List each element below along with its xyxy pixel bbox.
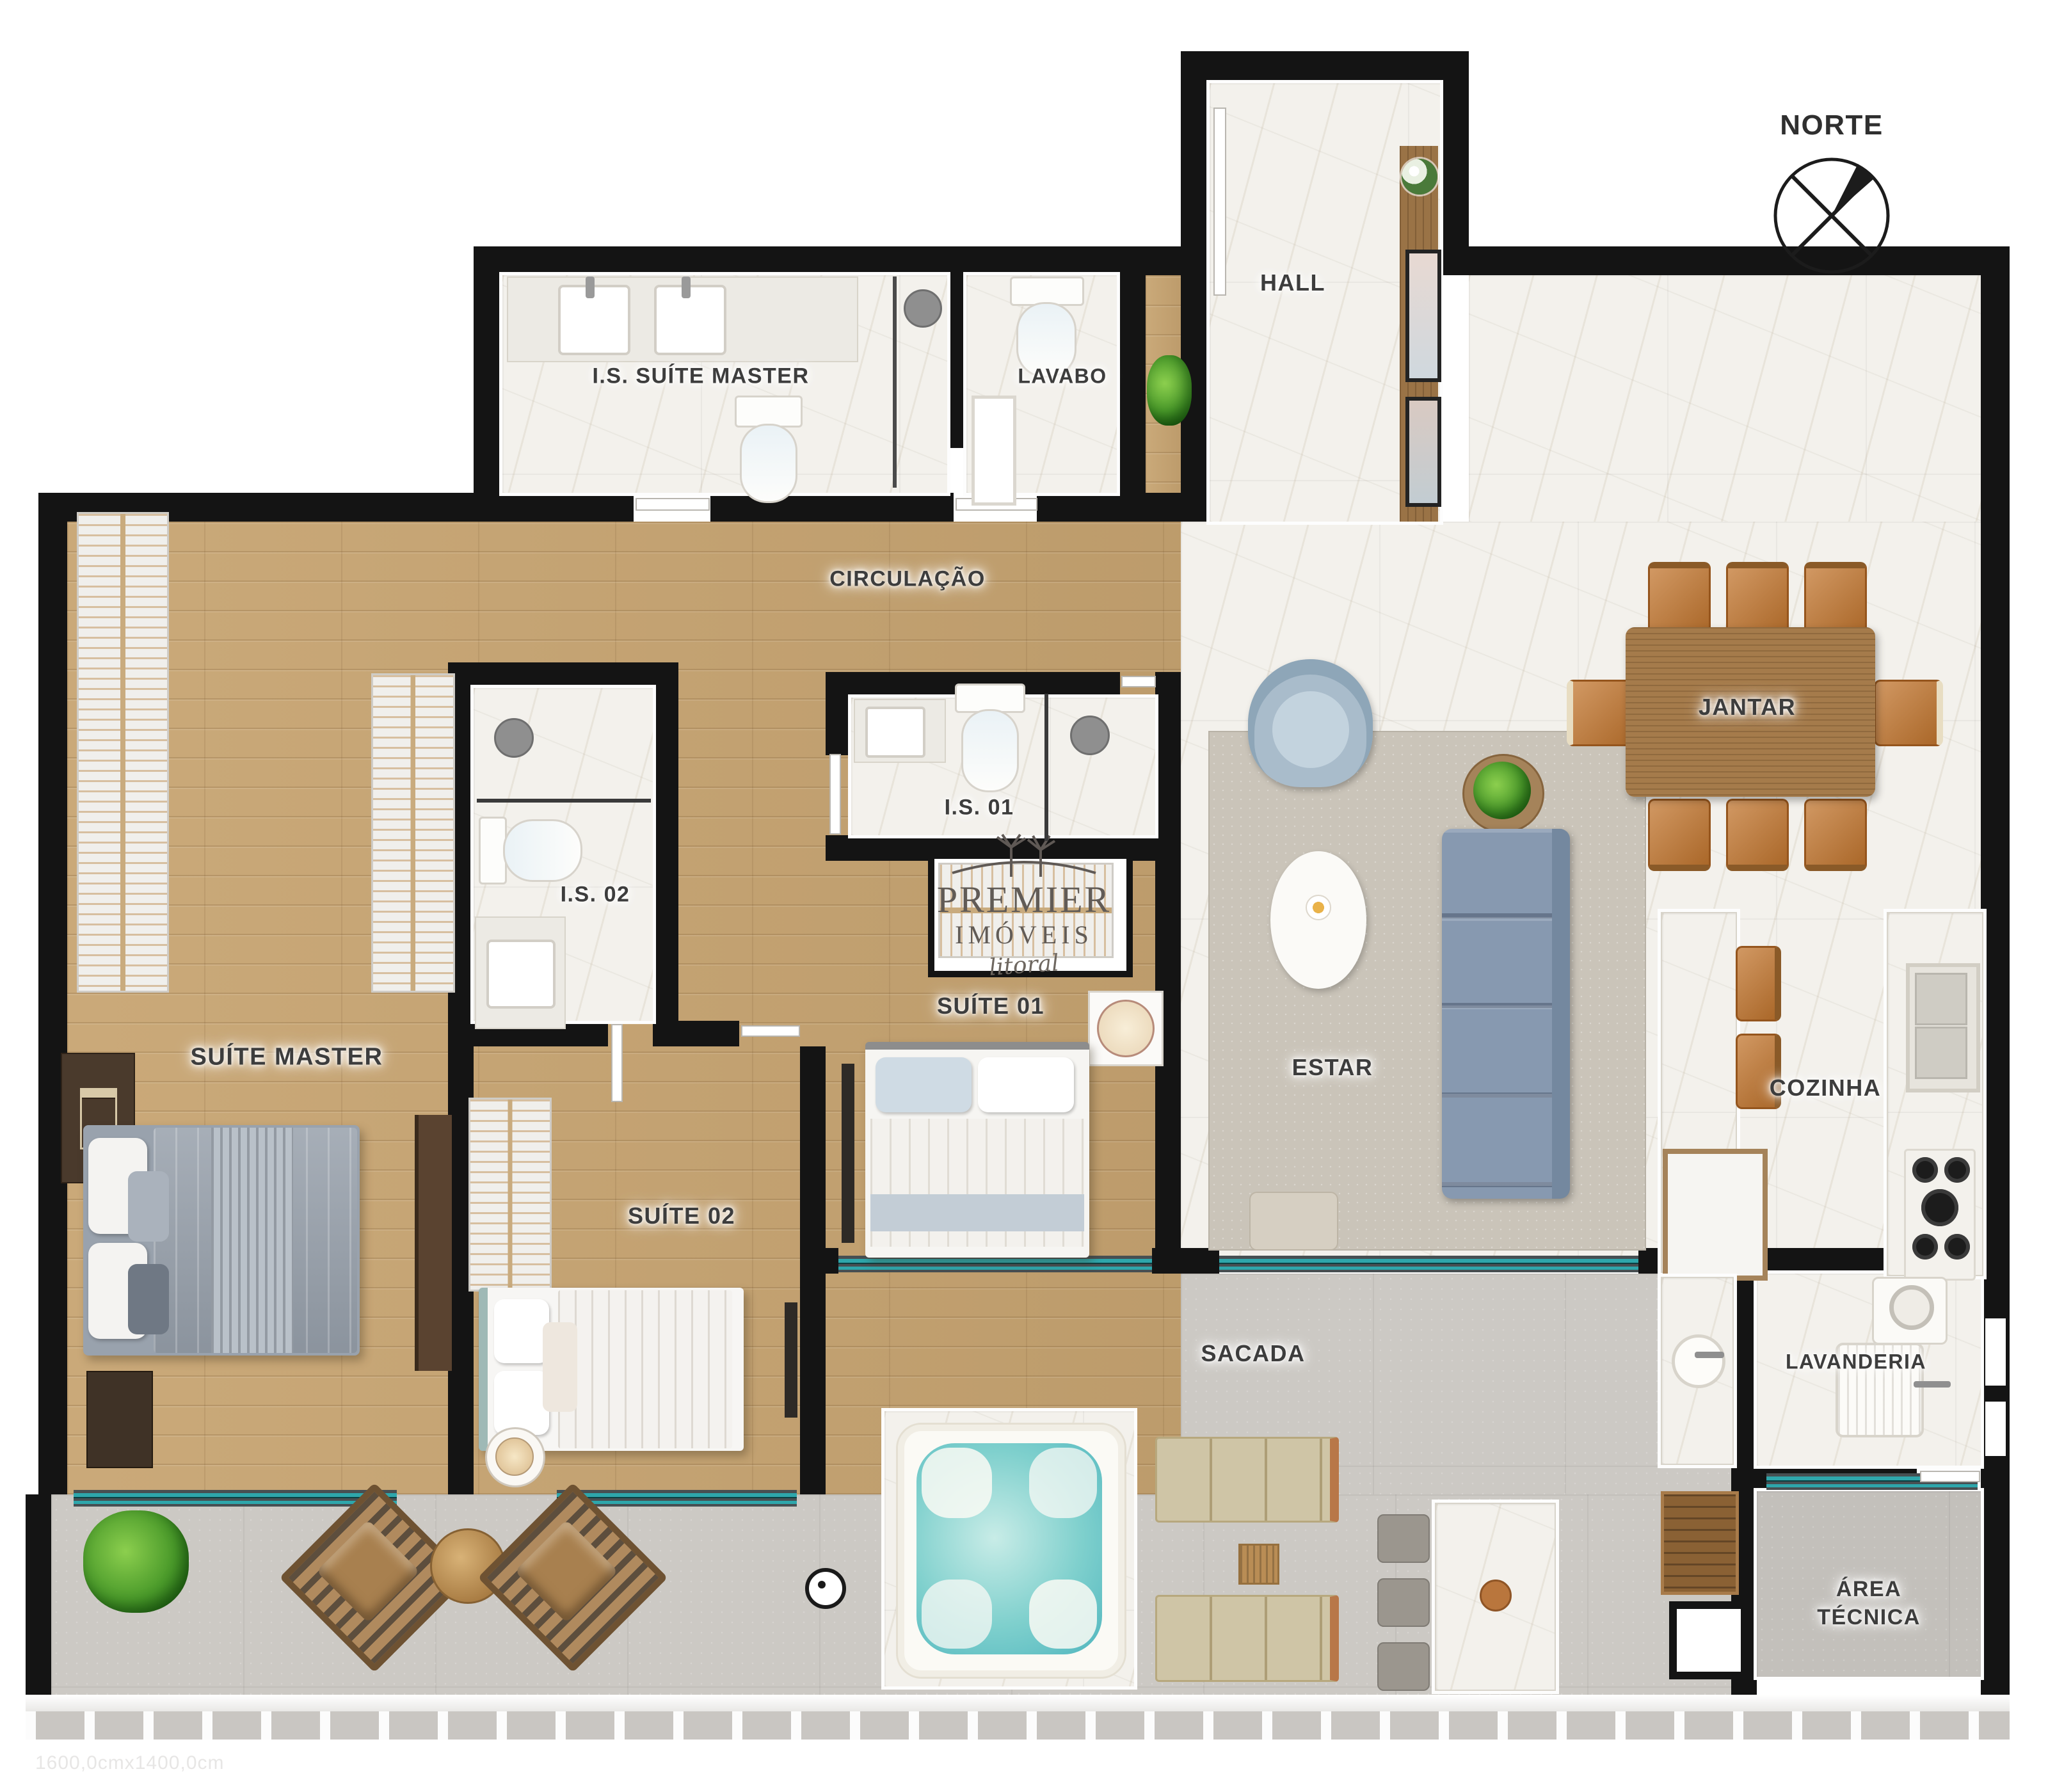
wall xyxy=(710,493,954,522)
room-label-lavanderia: LAVANDERIA xyxy=(1786,1350,1926,1374)
bed-suite01-throw xyxy=(870,1194,1084,1231)
wall xyxy=(474,246,502,522)
tv-panel-suite02 xyxy=(785,1302,797,1418)
door-is-01 xyxy=(829,754,841,835)
room-label-suite-01: SUÍTE 01 xyxy=(937,993,1044,1020)
pillow xyxy=(128,1171,169,1242)
wall xyxy=(1155,672,1181,1274)
faucet-icon xyxy=(682,276,691,298)
room-label-jantar: JANTAR xyxy=(1699,694,1796,721)
hall-plant xyxy=(1147,355,1192,426)
bench xyxy=(86,1371,153,1468)
premier-logo-brand2: IMÓVEIS xyxy=(915,920,1133,950)
sink-basin xyxy=(1915,973,1967,1025)
washer-door-icon xyxy=(1889,1285,1934,1330)
wardrobe xyxy=(468,1098,552,1292)
dimensions-note: 1600,0cmx1400,0cm xyxy=(35,1752,225,1774)
door-entry xyxy=(1213,108,1226,296)
lounger xyxy=(1155,1595,1339,1682)
room-label-area-tecnica: ÁREA TÉCNICA xyxy=(1789,1575,1949,1631)
lamp xyxy=(495,1437,534,1476)
rug xyxy=(1208,731,1646,1251)
room-label-cozinha: COZINHA xyxy=(1770,1075,1882,1101)
pillow xyxy=(494,1299,549,1363)
burner-icon xyxy=(1912,1157,1938,1183)
dining-chair xyxy=(1648,562,1711,634)
sliding-door-suite-01 xyxy=(838,1256,1152,1272)
wall-hall-left xyxy=(1181,51,1210,522)
wood-cabinet xyxy=(1661,1491,1739,1595)
window xyxy=(1985,1318,2006,1386)
lamp xyxy=(1097,1000,1155,1057)
room-label-circulacao: CIRCULAÇÃO xyxy=(829,567,986,592)
floor-dining-top-marble xyxy=(1469,275,1981,522)
wall xyxy=(1181,1248,1219,1274)
wall xyxy=(474,246,1181,275)
balcony-rail-white xyxy=(26,1695,2010,1711)
balcony-rail-ticks xyxy=(26,1711,2010,1740)
flower-vase xyxy=(1402,159,1437,195)
premier-logo-palms-icon xyxy=(915,833,1133,878)
compass-label: NORTE xyxy=(1780,109,1884,141)
dining-chair xyxy=(1804,799,1867,871)
wall-top-right xyxy=(1440,246,2010,275)
outdoor-chair xyxy=(1377,1578,1430,1627)
tv-panel-suite01 xyxy=(842,1064,854,1243)
wall xyxy=(678,1021,739,1046)
gourmet-sink xyxy=(1672,1334,1725,1388)
faucet-icon xyxy=(586,276,595,298)
door-lavanderia xyxy=(1920,1471,1980,1482)
shower-divider xyxy=(477,799,651,803)
balcony-plant xyxy=(83,1510,189,1613)
compass-icon xyxy=(1764,148,1899,283)
dining-chair xyxy=(1726,562,1789,634)
dining-chair xyxy=(1804,562,1867,634)
sink xyxy=(486,940,556,1009)
hot-tub-seat xyxy=(1029,1580,1097,1649)
outdoor-chair xyxy=(1377,1642,1430,1691)
sofa xyxy=(1442,829,1570,1199)
side-table xyxy=(1238,1544,1279,1585)
burner-icon xyxy=(1944,1234,1970,1260)
shower-head-icon xyxy=(904,289,942,328)
toilet xyxy=(735,396,803,428)
shower-head-icon xyxy=(494,718,534,758)
burner-icon xyxy=(1921,1189,1958,1226)
room-label-hall: HALL xyxy=(1260,269,1325,296)
wall-right-outer xyxy=(1981,246,2010,1466)
toilet-bowl xyxy=(503,819,582,882)
tv-panel-master xyxy=(415,1115,452,1371)
armchair-seat xyxy=(1272,691,1349,768)
wall xyxy=(826,672,851,755)
coffee-cup xyxy=(1306,895,1331,920)
room-label-lavabo: LAVABO xyxy=(1018,365,1107,388)
door-is-02 xyxy=(611,1024,623,1102)
wall-right-outer xyxy=(1981,1466,2010,1702)
kitchen-stool xyxy=(1736,946,1781,1021)
room-label-sacada: SACADA xyxy=(1201,1340,1305,1367)
door-is-suite-master xyxy=(636,498,710,511)
sliding-door-estar xyxy=(1219,1256,1638,1272)
wall-hall-top xyxy=(1181,51,1469,83)
room-label-is-suite-master: I.S. SUÍTE MASTER xyxy=(592,364,809,389)
bed-suite02-duvet xyxy=(558,1290,732,1448)
room-label-suite-master: SUÍTE MASTER xyxy=(191,1044,383,1071)
room-label-estar: ESTAR xyxy=(1292,1054,1373,1081)
wall xyxy=(800,1248,838,1274)
hot-tub-seat xyxy=(922,1448,992,1518)
pouf xyxy=(1249,1192,1338,1251)
burner-icon xyxy=(1912,1234,1938,1260)
wardrobe xyxy=(371,673,455,993)
estar-plant xyxy=(1473,762,1531,819)
dining-chair xyxy=(1648,799,1711,871)
wall xyxy=(947,275,966,448)
toilet-bowl xyxy=(961,709,1019,792)
pillow xyxy=(543,1322,577,1412)
floor-plan: PREMIER IMÓVEIS litoral xyxy=(0,0,2048,1792)
wall-balcony-left xyxy=(26,1494,51,1706)
laundry-faucet-icon xyxy=(1914,1381,1951,1388)
toilet-bowl xyxy=(740,424,797,503)
shower-divider xyxy=(1044,694,1048,841)
sliding-door-suite-master xyxy=(74,1490,397,1507)
gourmet-faucet-icon xyxy=(1695,1352,1724,1358)
wall xyxy=(448,662,678,688)
hot-tub-seat xyxy=(1029,1448,1097,1518)
hall-frame xyxy=(1405,250,1441,382)
wall xyxy=(653,662,678,1046)
door-suite-01 xyxy=(1121,676,1156,687)
fridge xyxy=(1663,1149,1768,1281)
pillow xyxy=(128,1264,169,1334)
shower-head-icon xyxy=(1070,716,1110,755)
floor-drain-center xyxy=(818,1581,826,1588)
pillow xyxy=(978,1057,1074,1112)
door-suite-02 xyxy=(741,1025,800,1037)
lavabo-sink xyxy=(972,396,1016,506)
sink xyxy=(865,707,925,758)
room-label-is-01: I.S. 01 xyxy=(945,796,1014,820)
wardrobe xyxy=(77,512,169,993)
wall xyxy=(1117,246,1146,522)
wall-left-outer xyxy=(38,493,67,1494)
outdoor-chair xyxy=(1377,1514,1430,1563)
lounger xyxy=(1155,1437,1339,1523)
pillow xyxy=(876,1057,972,1112)
burner-icon xyxy=(1944,1157,1970,1183)
hall-frame xyxy=(1405,397,1441,507)
outdoor-table-vase xyxy=(1480,1580,1512,1612)
technical-box xyxy=(1669,1601,1748,1679)
premier-logo-brand: PREMIER xyxy=(915,878,1133,921)
hot-tub-seat xyxy=(922,1580,992,1649)
wall xyxy=(474,493,634,522)
wall xyxy=(1152,1248,1181,1274)
shower-divider xyxy=(893,276,897,488)
sink-basin xyxy=(1915,1027,1967,1079)
room-label-is-02: I.S. 02 xyxy=(561,883,630,908)
premier-logo: PREMIER IMÓVEIS litoral xyxy=(915,851,1133,979)
wall-hall-right xyxy=(1440,51,1469,275)
bed-master-throw xyxy=(211,1128,293,1353)
floor-drain-icon xyxy=(805,1568,846,1609)
room-label-suite-02: SUÍTE 02 xyxy=(628,1203,735,1229)
wall xyxy=(1037,493,1181,522)
window xyxy=(1985,1402,2006,1456)
pillow xyxy=(494,1371,549,1435)
dining-chair xyxy=(1874,680,1943,746)
dining-chair xyxy=(1726,799,1789,871)
